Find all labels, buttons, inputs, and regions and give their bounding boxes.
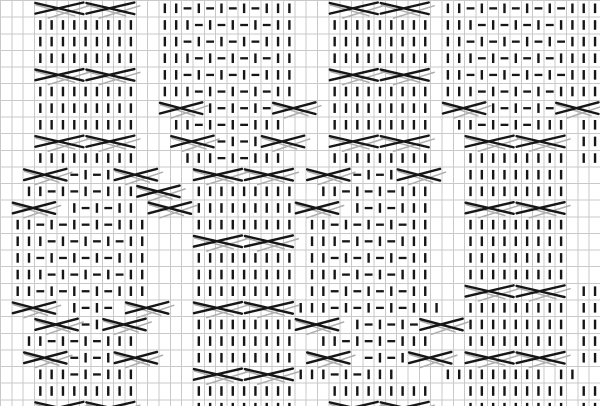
knit-symbol xyxy=(367,386,369,396)
knit-symbol xyxy=(333,270,335,280)
knit-symbol xyxy=(209,103,211,113)
knit-symbol xyxy=(39,236,41,246)
knit-symbol xyxy=(447,37,449,47)
knit-symbol xyxy=(50,220,52,230)
knit-symbol xyxy=(537,53,539,63)
knit-symbol xyxy=(277,120,279,130)
purl-symbol xyxy=(93,357,101,359)
knit-symbol xyxy=(118,253,120,263)
knit-symbol xyxy=(594,336,596,346)
knit-symbol xyxy=(62,103,64,113)
purl-symbol xyxy=(523,124,531,126)
knit-symbol xyxy=(288,4,290,14)
knit-symbol xyxy=(356,187,358,197)
knit-symbol xyxy=(198,320,200,330)
knit-symbol xyxy=(367,220,369,230)
knit-symbol xyxy=(39,187,41,197)
knit-symbol xyxy=(266,37,268,47)
knit-symbol xyxy=(62,370,64,380)
knit-symbol xyxy=(594,53,596,63)
knit-symbol xyxy=(50,253,52,263)
purl-symbol xyxy=(523,90,531,92)
knit-symbol xyxy=(243,270,245,280)
knit-symbol xyxy=(322,253,324,263)
knit-symbol xyxy=(232,87,234,97)
knit-symbol xyxy=(39,103,41,113)
knit-symbol xyxy=(277,20,279,30)
knit-symbol xyxy=(96,87,98,97)
knit-symbol xyxy=(469,170,471,180)
purl-symbol xyxy=(116,240,124,242)
knit-symbol xyxy=(379,53,381,63)
knit-symbol xyxy=(277,253,279,263)
knit-symbol xyxy=(413,187,415,197)
knit-symbol xyxy=(571,70,573,80)
purl-symbol xyxy=(229,7,237,9)
knit-symbol xyxy=(266,153,268,163)
knit-symbol xyxy=(356,120,358,130)
purl-symbol xyxy=(104,224,112,226)
purl-symbol xyxy=(240,124,248,126)
knit-symbol xyxy=(84,270,86,280)
knit-symbol xyxy=(243,203,245,213)
knit-symbol xyxy=(424,253,426,263)
knit-symbol xyxy=(118,53,120,63)
knit-symbol xyxy=(130,120,132,130)
knit-symbol xyxy=(345,286,347,296)
purl-symbol xyxy=(82,224,90,226)
knit-symbol xyxy=(62,187,64,197)
knit-symbol xyxy=(232,20,234,30)
knit-symbol xyxy=(50,286,52,296)
knit-symbol xyxy=(594,286,596,296)
knit-symbol xyxy=(469,270,471,280)
knit-symbol xyxy=(390,37,392,47)
knit-symbol xyxy=(243,4,245,14)
knit-symbol xyxy=(220,320,222,330)
knit-symbol xyxy=(469,386,471,396)
knit-symbol xyxy=(118,336,120,346)
purl-symbol xyxy=(365,357,373,359)
purl-symbol xyxy=(218,157,226,159)
purl-symbol xyxy=(467,74,475,76)
knit-symbol xyxy=(333,87,335,97)
knit-symbol xyxy=(73,386,75,396)
knit-symbol xyxy=(107,236,109,246)
purl-symbol xyxy=(535,41,543,43)
knit-symbol xyxy=(232,353,234,363)
knit-symbol xyxy=(469,220,471,230)
knit-symbol xyxy=(118,286,120,296)
knit-symbol xyxy=(503,37,505,47)
knit-symbol xyxy=(537,303,539,313)
purl-symbol xyxy=(104,257,112,259)
knit-symbol xyxy=(254,153,256,163)
knit-symbol xyxy=(458,4,460,14)
knit-symbol xyxy=(266,286,268,296)
knit-symbol xyxy=(232,270,234,280)
knit-symbol xyxy=(39,37,41,47)
knit-symbol xyxy=(220,187,222,197)
knit-symbol xyxy=(424,336,426,346)
knit-symbol xyxy=(424,37,426,47)
knit-symbol xyxy=(50,20,52,30)
knit-symbol xyxy=(469,320,471,330)
knit-symbol xyxy=(537,120,539,130)
knit-symbol xyxy=(175,53,177,63)
knit-symbol xyxy=(413,336,415,346)
knit-symbol xyxy=(28,286,30,296)
knit-symbol xyxy=(447,70,449,80)
knit-symbol xyxy=(549,187,551,197)
knit-symbol xyxy=(469,53,471,63)
knit-symbol xyxy=(492,120,494,130)
knit-symbol xyxy=(288,220,290,230)
purl-symbol xyxy=(365,323,373,325)
knit-symbol xyxy=(39,120,41,130)
knit-symbol xyxy=(254,187,256,197)
knit-symbol xyxy=(243,386,245,396)
knit-symbol xyxy=(266,220,268,230)
knit-symbol xyxy=(583,87,585,97)
knit-symbol xyxy=(413,386,415,396)
purl-symbol xyxy=(93,373,101,375)
knit-symbol xyxy=(549,336,551,346)
knit-symbol xyxy=(526,320,528,330)
knit-symbol xyxy=(401,336,403,346)
knit-symbol xyxy=(345,87,347,97)
knit-symbol xyxy=(266,253,268,263)
knit-symbol xyxy=(118,103,120,113)
knit-symbol xyxy=(537,386,539,396)
knit-symbol xyxy=(266,270,268,280)
knit-symbol xyxy=(96,286,98,296)
knit-symbol xyxy=(243,187,245,197)
purl-symbol xyxy=(467,7,475,9)
knit-symbol xyxy=(220,336,222,346)
knit-symbol xyxy=(254,353,256,363)
purl-symbol xyxy=(557,7,565,9)
knit-symbol xyxy=(515,270,517,280)
knit-symbol xyxy=(107,153,109,163)
knit-symbol xyxy=(209,353,211,363)
knit-symbol xyxy=(537,253,539,263)
knit-symbol xyxy=(424,53,426,63)
purl-symbol xyxy=(240,57,248,59)
knit-symbol xyxy=(537,220,539,230)
knit-symbol xyxy=(503,386,505,396)
knit-symbol xyxy=(266,386,268,396)
knit-symbol xyxy=(288,87,290,97)
knit-symbol xyxy=(424,220,426,230)
knit-symbol xyxy=(277,386,279,396)
knit-symbol xyxy=(209,153,211,163)
knit-symbol xyxy=(379,153,381,163)
knit-symbol xyxy=(164,87,166,97)
knit-symbol xyxy=(469,153,471,163)
knit-symbol xyxy=(141,220,143,230)
knit-symbol xyxy=(367,103,369,113)
knit-symbol xyxy=(254,386,256,396)
knit-symbol xyxy=(583,353,585,363)
purl-symbol xyxy=(342,340,350,342)
knit-symbol xyxy=(526,153,528,163)
knit-symbol xyxy=(96,320,98,330)
knit-symbol xyxy=(50,120,52,130)
knit-symbol xyxy=(198,203,200,213)
knit-symbol xyxy=(481,70,483,80)
knit-symbol xyxy=(503,303,505,313)
knit-symbol xyxy=(322,370,324,380)
knit-symbol xyxy=(345,120,347,130)
knit-symbol xyxy=(243,353,245,363)
knit-symbol xyxy=(515,320,517,330)
purl-symbol xyxy=(399,290,407,292)
purl-symbol xyxy=(206,41,214,43)
knit-symbol xyxy=(571,370,573,380)
knit-symbol xyxy=(333,20,335,30)
purl-symbol xyxy=(353,224,361,226)
knit-symbol xyxy=(84,20,86,30)
knit-symbol xyxy=(84,170,86,180)
knit-symbol xyxy=(492,187,494,197)
purl-symbol xyxy=(206,74,214,76)
knit-symbol xyxy=(266,187,268,197)
knit-symbol xyxy=(107,53,109,63)
knit-symbol xyxy=(39,270,41,280)
knit-symbol xyxy=(277,53,279,63)
purl-symbol xyxy=(342,273,350,275)
knit-symbol xyxy=(118,37,120,47)
knit-symbol xyxy=(186,120,188,130)
knit-symbol xyxy=(333,187,335,197)
knit-symbol xyxy=(401,120,403,130)
knit-symbol xyxy=(209,20,211,30)
knit-symbol xyxy=(583,320,585,330)
purl-symbol xyxy=(353,307,361,309)
knit-symbol xyxy=(175,37,177,47)
purl-symbol xyxy=(93,340,101,342)
knit-symbol xyxy=(345,37,347,47)
purl-symbol xyxy=(387,240,395,242)
purl-symbol xyxy=(478,24,486,26)
knit-symbol xyxy=(390,303,392,313)
knit-symbol xyxy=(560,220,562,230)
purl-symbol xyxy=(546,24,554,26)
knit-symbol xyxy=(549,220,551,230)
knit-symbol xyxy=(526,187,528,197)
purl-symbol xyxy=(376,257,384,259)
knit-symbol xyxy=(118,87,120,97)
knit-symbol xyxy=(266,336,268,346)
knit-symbol xyxy=(130,37,132,47)
knit-symbol xyxy=(469,20,471,30)
purl-symbol xyxy=(184,41,192,43)
knit-symbol xyxy=(73,153,75,163)
knit-symbol xyxy=(549,37,551,47)
knit-symbol xyxy=(73,53,75,63)
purl-symbol xyxy=(82,207,90,209)
knit-symbol xyxy=(390,286,392,296)
purl-symbol xyxy=(523,24,531,26)
knit-symbol xyxy=(401,270,403,280)
knit-symbol xyxy=(503,220,505,230)
knit-symbol xyxy=(164,53,166,63)
purl-symbol xyxy=(501,124,509,126)
knit-symbol xyxy=(73,20,75,30)
knit-symbol xyxy=(96,203,98,213)
knit-symbol xyxy=(198,353,200,363)
knit-symbol xyxy=(209,120,211,130)
purl-symbol xyxy=(218,140,226,142)
knit-symbol xyxy=(277,286,279,296)
knit-symbol xyxy=(367,37,369,47)
knit-symbol xyxy=(175,87,177,97)
knit-symbol xyxy=(458,70,460,80)
knit-symbol xyxy=(288,336,290,346)
knit-symbol xyxy=(367,286,369,296)
knit-symbol xyxy=(345,103,347,113)
purl-symbol xyxy=(218,90,226,92)
knit-symbol xyxy=(594,20,596,30)
knit-symbol xyxy=(401,153,403,163)
knit-symbol xyxy=(379,187,381,197)
knit-symbol xyxy=(424,20,426,30)
knit-symbol xyxy=(526,236,528,246)
knit-symbol xyxy=(322,187,324,197)
knit-symbol xyxy=(84,120,86,130)
purl-symbol xyxy=(195,57,203,59)
purl-symbol xyxy=(557,74,565,76)
knit-symbol xyxy=(447,20,449,30)
purl-symbol xyxy=(36,224,44,226)
purl-symbol xyxy=(263,107,271,109)
knit-symbol xyxy=(367,370,369,380)
purl-symbol xyxy=(331,257,339,259)
knit-symbol xyxy=(515,236,517,246)
purl-symbol xyxy=(184,7,192,9)
purl-symbol xyxy=(70,273,78,275)
purl-symbol xyxy=(546,107,554,109)
knit-symbol xyxy=(435,303,437,313)
knit-symbol xyxy=(209,270,211,280)
knit-symbol xyxy=(515,187,517,197)
knit-symbol xyxy=(401,87,403,97)
knit-symbol xyxy=(39,53,41,63)
knit-symbol xyxy=(254,220,256,230)
knit-symbol xyxy=(537,236,539,246)
knit-symbol xyxy=(390,87,392,97)
knit-symbol xyxy=(492,336,494,346)
knit-symbol xyxy=(73,120,75,130)
knit-symbol xyxy=(118,203,120,213)
knit-symbol xyxy=(209,203,211,213)
knit-symbol xyxy=(481,253,483,263)
knit-symbol xyxy=(560,303,562,313)
knit-symbol xyxy=(537,103,539,113)
knit-symbol xyxy=(73,286,75,296)
knit-symbol xyxy=(50,87,52,97)
knit-symbol xyxy=(130,336,132,346)
purl-symbol xyxy=(70,174,78,176)
knit-symbol xyxy=(277,4,279,14)
knit-symbol xyxy=(537,153,539,163)
purl-symbol xyxy=(331,307,339,309)
knit-symbol xyxy=(549,320,551,330)
knit-symbol xyxy=(583,153,585,163)
purl-symbol xyxy=(82,290,90,292)
knit-symbol xyxy=(390,153,392,163)
knit-symbol xyxy=(515,220,517,230)
knit-symbol xyxy=(96,120,98,130)
purl-symbol xyxy=(501,107,509,109)
knit-symbol xyxy=(345,220,347,230)
knit-symbol xyxy=(186,20,188,30)
knit-symbol xyxy=(503,236,505,246)
knit-symbol xyxy=(62,37,64,47)
knit-symbol xyxy=(84,103,86,113)
knit-symbol xyxy=(345,303,347,313)
knit-symbol xyxy=(243,286,245,296)
knit-symbol xyxy=(469,187,471,197)
knit-symbol xyxy=(549,170,551,180)
knit-symbol xyxy=(266,4,268,14)
knit-symbol xyxy=(220,4,222,14)
purl-symbol xyxy=(218,107,226,109)
knit-symbol xyxy=(232,120,234,130)
knit-symbol xyxy=(73,103,75,113)
knit-symbol xyxy=(62,87,64,97)
knit-symbol xyxy=(288,37,290,47)
knit-symbol xyxy=(73,220,75,230)
knit-symbol xyxy=(311,253,313,263)
purl-symbol xyxy=(512,74,520,76)
knit-symbol xyxy=(390,120,392,130)
knit-symbol xyxy=(118,386,120,396)
knit-symbol xyxy=(130,87,132,97)
knit-symbol xyxy=(130,187,132,197)
purl-symbol xyxy=(331,224,339,226)
knit-symbol xyxy=(175,4,177,14)
purl-symbol xyxy=(59,224,67,226)
knit-symbol xyxy=(107,170,109,180)
knit-symbol xyxy=(322,336,324,346)
knit-symbol xyxy=(526,336,528,346)
knit-symbol xyxy=(130,386,132,396)
knit-symbol xyxy=(379,370,381,380)
knit-symbol xyxy=(481,336,483,346)
knit-symbol xyxy=(390,170,392,180)
knit-symbol xyxy=(141,236,143,246)
knit-symbol xyxy=(390,103,392,113)
knitting-chart xyxy=(0,0,600,406)
purl-symbol xyxy=(512,7,520,9)
purl-symbol xyxy=(387,207,395,209)
knit-symbol xyxy=(571,87,573,97)
purl-symbol xyxy=(263,24,271,26)
knit-symbol xyxy=(367,170,369,180)
knit-symbol xyxy=(345,20,347,30)
knit-symbol xyxy=(424,270,426,280)
knit-symbol xyxy=(560,53,562,63)
knit-symbol xyxy=(311,220,313,230)
knit-symbol xyxy=(107,386,109,396)
knit-symbol xyxy=(107,87,109,97)
knit-symbol xyxy=(254,253,256,263)
purl-symbol xyxy=(501,90,509,92)
purl-symbol xyxy=(376,224,384,226)
knit-symbol xyxy=(39,370,41,380)
